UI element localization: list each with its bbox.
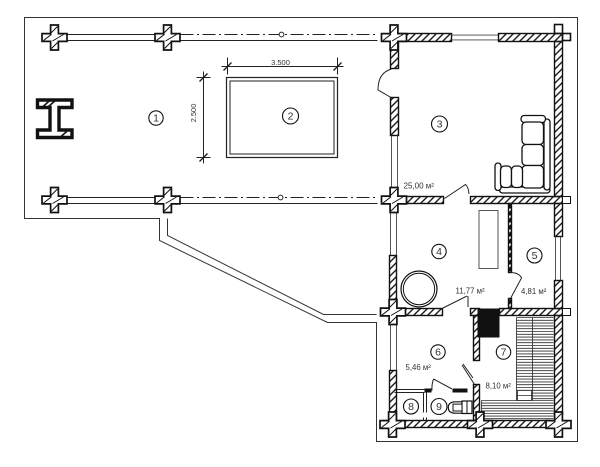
svg-text:8: 8 xyxy=(408,401,414,413)
svg-text:1: 1 xyxy=(153,113,159,125)
svg-text:7: 7 xyxy=(501,347,507,359)
svg-text:6: 6 xyxy=(435,347,441,359)
svg-text:3.500: 3.500 xyxy=(271,58,290,67)
svg-text:4,81 м²: 4,81 м² xyxy=(521,287,547,296)
svg-text:4: 4 xyxy=(436,246,442,258)
svg-text:2.500: 2.500 xyxy=(189,104,198,123)
svg-text:8,10 м²: 8,10 м² xyxy=(486,382,512,391)
svg-text:2: 2 xyxy=(288,111,294,123)
svg-text:9: 9 xyxy=(436,401,442,413)
svg-text:5,46 м²: 5,46 м² xyxy=(406,363,432,372)
svg-text:25,00 м²: 25,00 м² xyxy=(404,182,435,191)
svg-text:5: 5 xyxy=(532,250,538,262)
svg-text:11,77 м²: 11,77 м² xyxy=(456,287,485,296)
svg-text:3: 3 xyxy=(437,119,443,131)
